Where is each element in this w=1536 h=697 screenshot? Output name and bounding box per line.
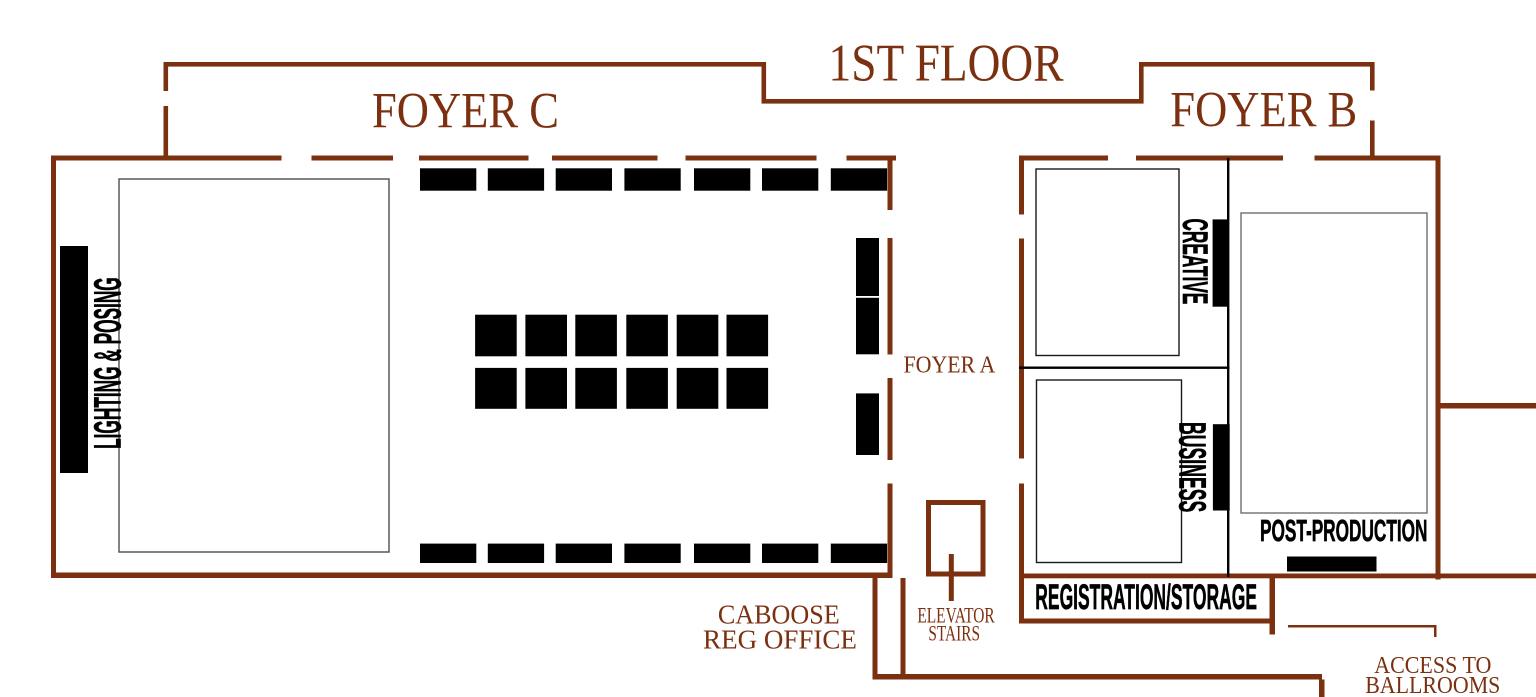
- svg-text:CREATIVE: CREATIVE: [1175, 219, 1214, 305]
- svg-text:1ST FLOOR: 1ST FLOOR: [829, 35, 1065, 93]
- svg-text:REGISTRATION/STORAGE: REGISTRATION/STORAGE: [1035, 578, 1257, 617]
- svg-text:BALLROOMS: BALLROOMS: [1365, 673, 1500, 697]
- svg-text:LIGHTING & POSING: LIGHTING & POSING: [87, 277, 129, 449]
- svg-text:BUSINESS: BUSINESS: [1171, 422, 1213, 512]
- svg-text:REG OFFICE: REG OFFICE: [703, 625, 857, 655]
- svg-text:FOYER A: FOYER A: [904, 353, 996, 379]
- svg-text:FOYER C: FOYER C: [372, 83, 559, 139]
- svg-text:STAIRS: STAIRS: [928, 621, 980, 646]
- svg-text:POST-PRODUCTION: POST-PRODUCTION: [1260, 514, 1428, 548]
- svg-text:FOYER B: FOYER B: [1170, 83, 1357, 139]
